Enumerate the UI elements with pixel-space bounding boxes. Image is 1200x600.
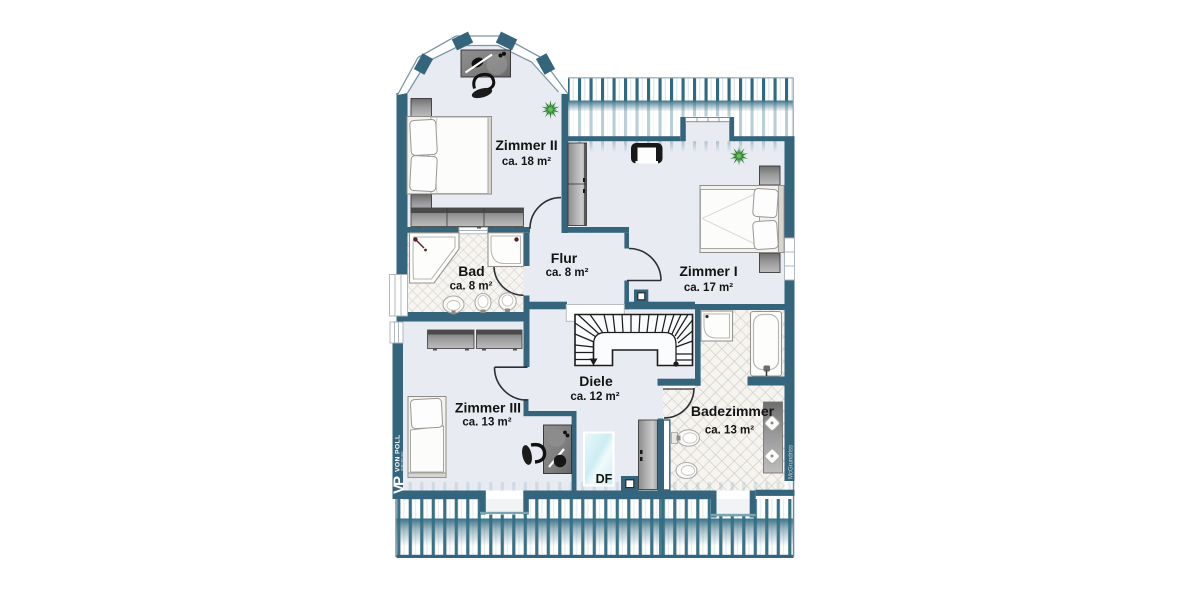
svg-text:Badezimmer: Badezimmer [691, 403, 775, 419]
svg-text:Zimmer I: Zimmer I [679, 263, 737, 279]
svg-text:Zimmer III: Zimmer III [455, 400, 521, 416]
svg-text:ca. 13 m²: ca. 13 m² [462, 417, 511, 429]
svg-text:ca. 12 m²: ca. 12 m² [570, 391, 619, 403]
svg-text:ca. 13 m²: ca. 13 m² [705, 425, 754, 437]
svg-text:ca. 8 m²: ca. 8 m² [450, 281, 493, 293]
svg-text:DF: DF [596, 472, 613, 486]
svg-text:VP: VP [391, 476, 408, 494]
svg-text:Diele: Diele [579, 373, 613, 389]
svg-text:Bad: Bad [458, 263, 484, 279]
svg-text:McGrundriss: McGrundriss [789, 445, 795, 479]
svg-text:Flur: Flur [551, 250, 578, 266]
svg-text:ca. 18 m²: ca. 18 m² [502, 156, 551, 168]
svg-text:ca. 17 m²: ca. 17 m² [684, 282, 733, 294]
svg-text:ca. 8 m²: ca. 8 m² [546, 267, 589, 279]
svg-text:IMMOBILIEN: IMMOBILIEN [400, 451, 404, 471]
svg-text:Zimmer II: Zimmer II [495, 137, 557, 153]
